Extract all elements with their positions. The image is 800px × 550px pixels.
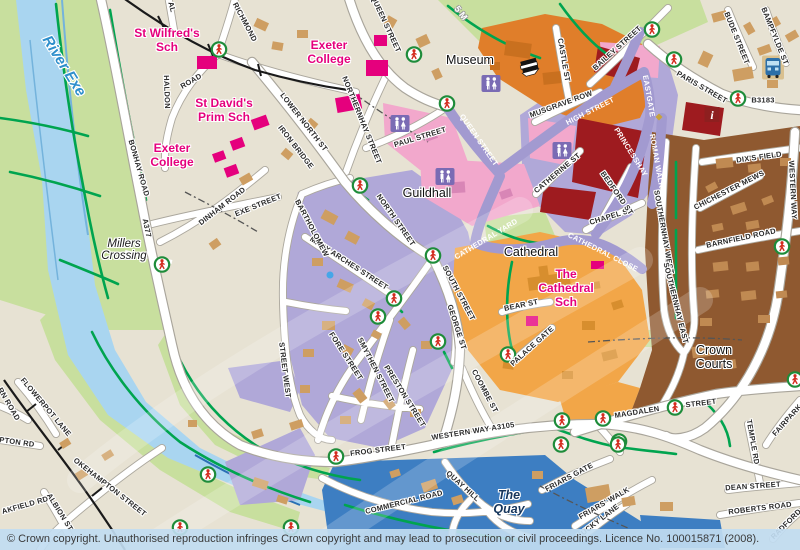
map-canvas[interactable]: i QUEEN STREETRICHMONDALHALDONROADBONHAY… bbox=[0, 0, 800, 550]
basemap-graphics bbox=[0, 0, 800, 550]
copyright-text: © Crown copyright. Unauthorised reproduc… bbox=[7, 533, 759, 545]
copyright-bar: © Crown copyright. Unauthorised reproduc… bbox=[0, 529, 800, 550]
